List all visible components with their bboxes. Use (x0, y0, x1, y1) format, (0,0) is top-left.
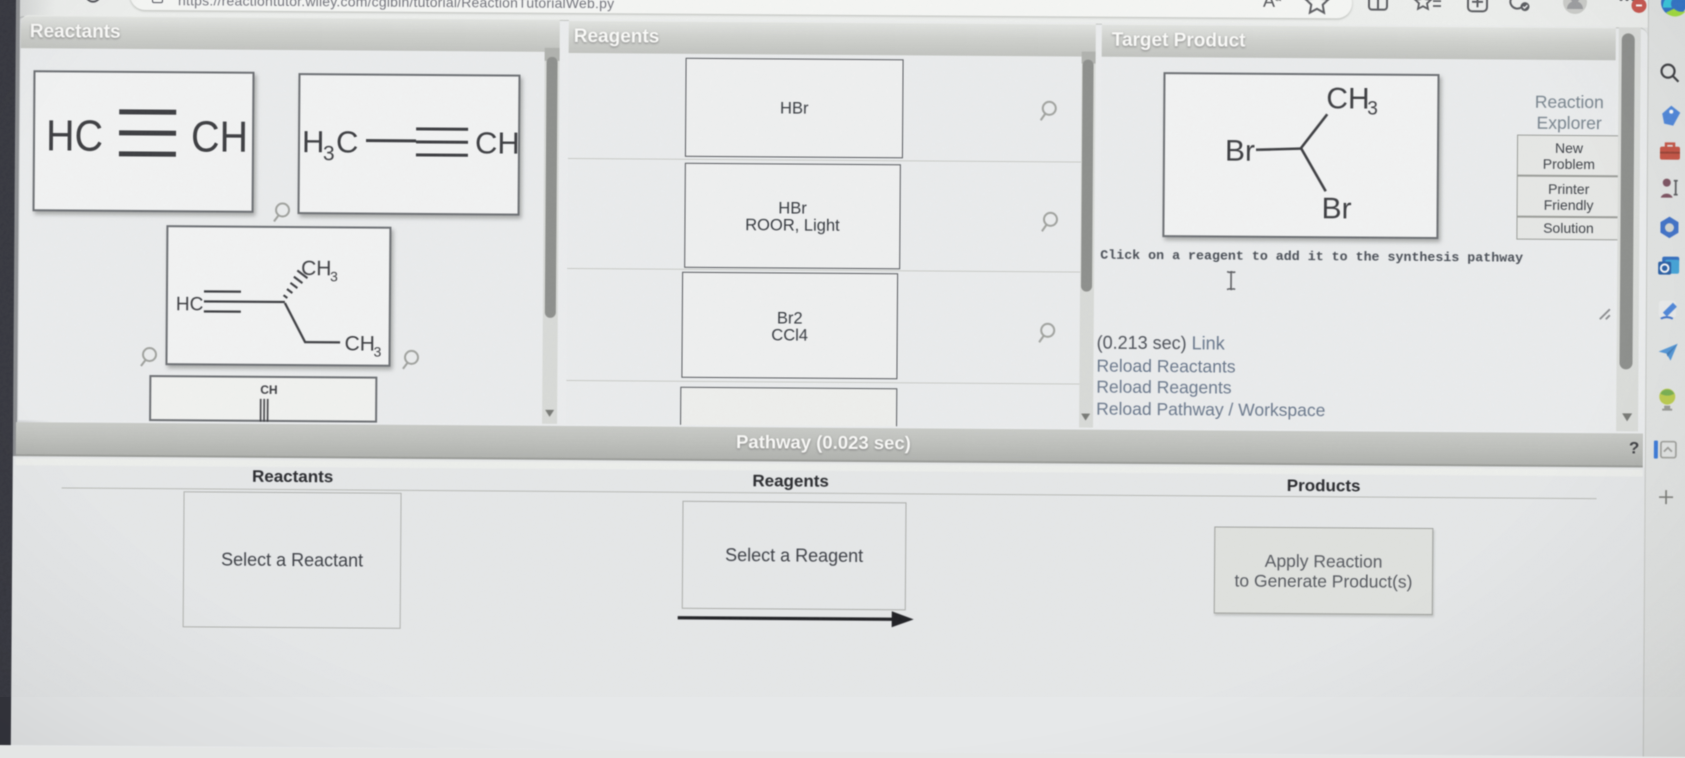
svg-text:CH: CH (260, 383, 277, 397)
svg-text:HC: HC (46, 111, 103, 160)
svg-text:3: 3 (1367, 99, 1378, 120)
svg-text:3: 3 (323, 142, 335, 165)
svg-text:Aa: Aa (1263, 0, 1282, 11)
svg-text:Br: Br (1225, 135, 1255, 168)
svg-text:CH: CH (191, 112, 248, 161)
svg-text:CH: CH (1326, 82, 1370, 115)
svg-text:HC: HC (176, 294, 204, 315)
svg-text:CH: CH (301, 257, 332, 280)
svg-text:C: C (336, 124, 359, 159)
svg-text:3: 3 (373, 344, 381, 360)
svg-text:CH: CH (475, 125, 520, 160)
svg-text:3: 3 (330, 268, 338, 284)
svg-text:Br: Br (1321, 192, 1351, 225)
svg-text:H: H (302, 124, 325, 159)
svg-text:CH: CH (345, 332, 376, 355)
